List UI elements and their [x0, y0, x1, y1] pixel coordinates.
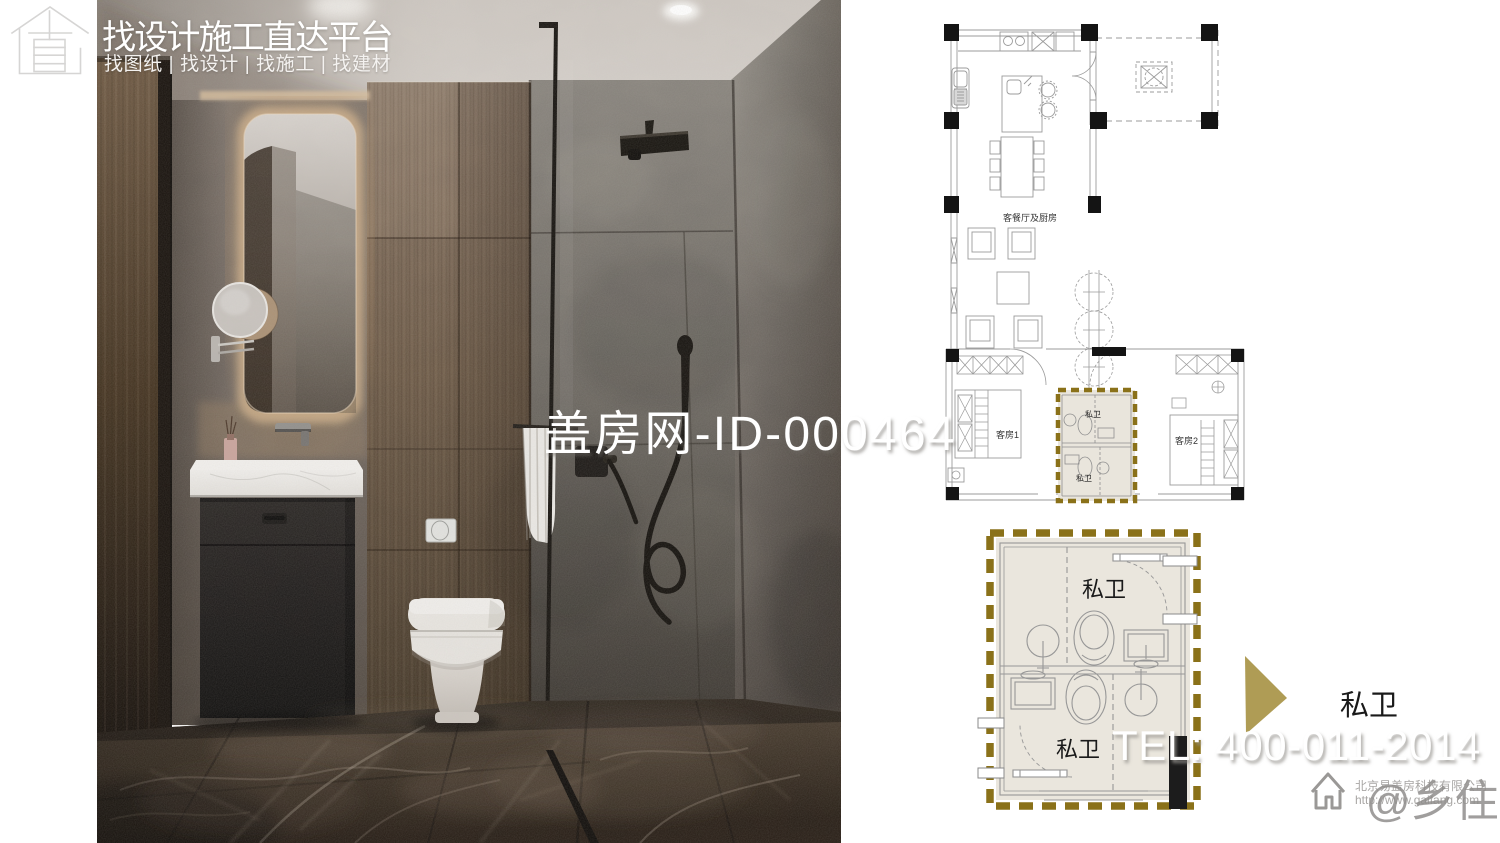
svg-text:客房2: 客房2 [1175, 435, 1198, 446]
svg-text:私卫: 私卫 [1082, 577, 1126, 602]
svg-text:私卫: 私卫 [1056, 737, 1100, 762]
svg-text:客餐厅及厨房: 客餐厅及厨房 [1003, 212, 1057, 223]
svg-text:私卫: 私卫 [1076, 474, 1092, 483]
svg-text:私卫: 私卫 [1085, 410, 1101, 419]
svg-text:客房1: 客房1 [996, 429, 1019, 440]
